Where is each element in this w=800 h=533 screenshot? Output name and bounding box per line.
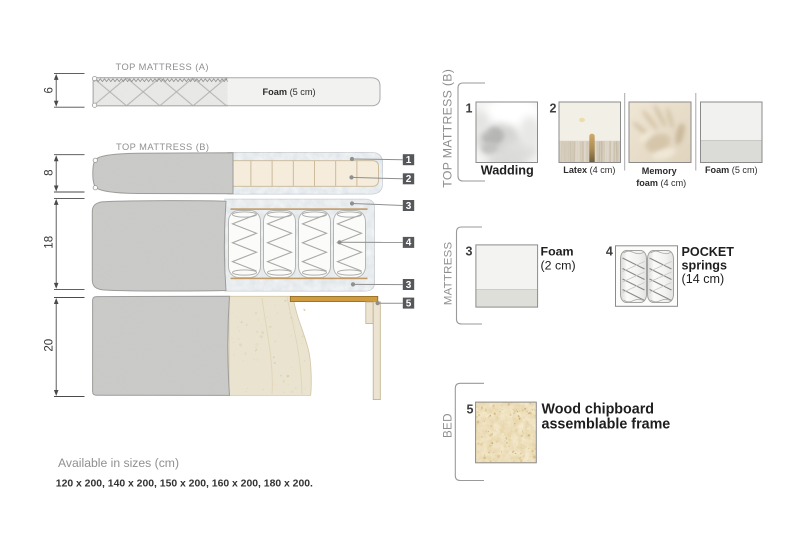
svg-text:(14 cm): (14 cm) — [682, 272, 725, 286]
svg-text:foam (4 cm): foam (4 cm) — [636, 178, 686, 188]
svg-text:Wadding: Wadding — [481, 163, 534, 177]
svg-text:2: 2 — [406, 174, 412, 185]
svg-text:(2 cm): (2 cm) — [541, 258, 576, 272]
svg-text:6: 6 — [43, 87, 55, 93]
svg-text:TOP MATTRESS (B): TOP MATTRESS (B) — [441, 69, 455, 188]
svg-text:8: 8 — [43, 169, 55, 175]
svg-text:TOP MATTRESS (A): TOP MATTRESS (A) — [116, 62, 209, 72]
svg-text:20: 20 — [43, 339, 55, 352]
svg-text:5: 5 — [467, 403, 474, 417]
svg-text:5: 5 — [406, 298, 412, 309]
svg-text:MATTRESS: MATTRESS — [443, 242, 455, 306]
svg-text:springs: springs — [682, 258, 728, 272]
svg-text:POCKET: POCKET — [682, 245, 735, 259]
svg-text:3: 3 — [406, 280, 412, 291]
svg-text:assemblable frame: assemblable frame — [542, 417, 671, 433]
svg-text:Available in sizes (cm): Available in sizes (cm) — [58, 456, 179, 470]
svg-text:Foam: Foam — [541, 245, 574, 259]
svg-text:Wood chipboard: Wood chipboard — [542, 401, 655, 417]
svg-text:4: 4 — [406, 238, 412, 249]
svg-text:BED: BED — [442, 413, 455, 438]
svg-text:1: 1 — [406, 155, 412, 166]
svg-text:TOP MATTRESS (B): TOP MATTRESS (B) — [116, 142, 209, 152]
svg-text:3: 3 — [466, 245, 473, 259]
svg-text:3: 3 — [406, 201, 412, 212]
svg-text:4: 4 — [606, 245, 613, 259]
svg-text:18: 18 — [43, 236, 55, 249]
svg-text:Foam (5 cm): Foam (5 cm) — [705, 165, 758, 175]
svg-text:2: 2 — [550, 102, 557, 116]
svg-text:Foam (5 cm): Foam (5 cm) — [263, 87, 316, 97]
svg-text:120 x 200, 140 x 200, 150 x 20: 120 x 200, 140 x 200, 150 x 200, 160 x 2… — [56, 478, 313, 489]
svg-text:1: 1 — [466, 102, 473, 116]
svg-text:Memory: Memory — [642, 166, 678, 176]
svg-text:Latex (4 cm): Latex (4 cm) — [563, 165, 615, 175]
